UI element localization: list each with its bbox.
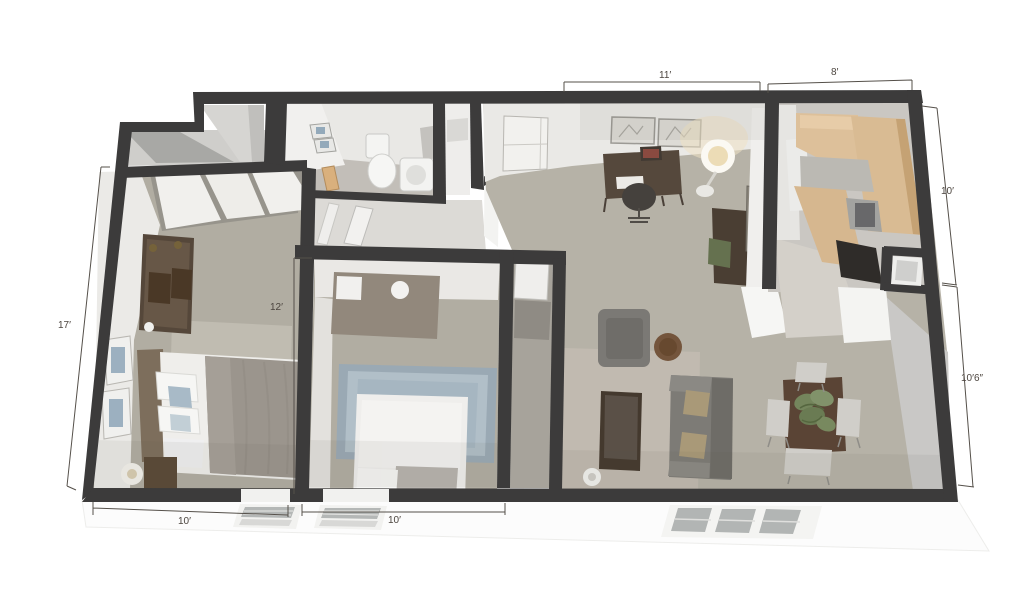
svg-text:11′: 11′ [659, 70, 671, 81]
svg-text:8′: 8′ [831, 67, 839, 78]
svg-text:10′: 10′ [178, 516, 191, 527]
svg-text:17′: 17′ [58, 320, 71, 331]
svg-text:12′: 12′ [270, 302, 283, 313]
svg-text:10′: 10′ [388, 515, 401, 526]
svg-text:10′: 10′ [941, 186, 954, 197]
svg-text:10′6″: 10′6″ [961, 373, 984, 384]
